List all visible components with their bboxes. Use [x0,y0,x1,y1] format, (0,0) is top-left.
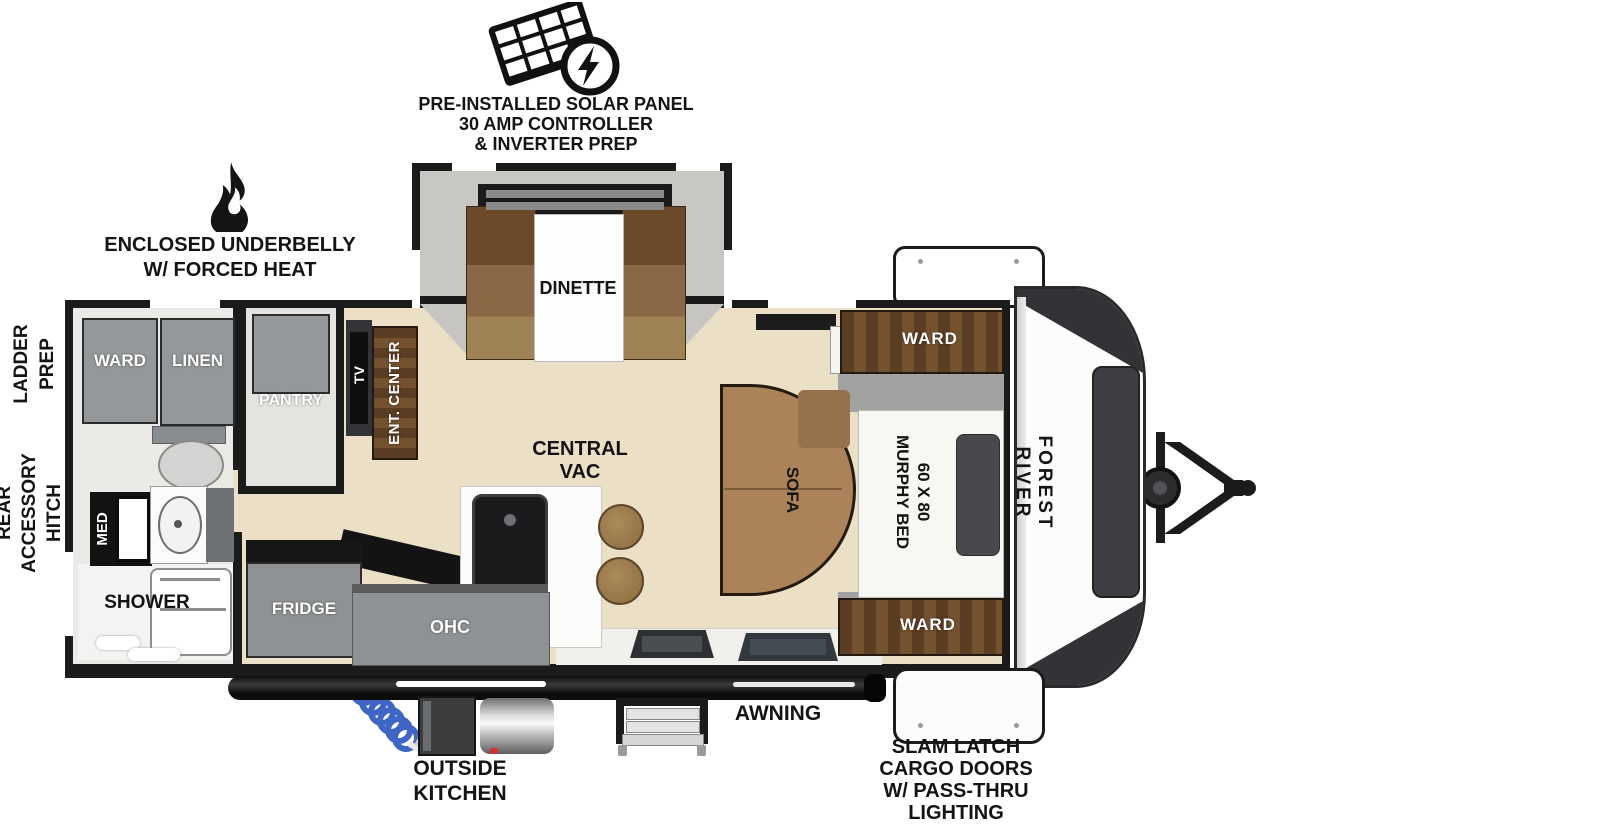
entry-step-well-inner [642,636,702,652]
vent-slat [486,190,664,198]
solar-panel-icon [487,2,627,96]
shower-label: SHOWER [84,592,210,614]
vanity-counter [206,488,234,562]
step-rail [616,698,708,706]
step-tread [622,734,704,746]
step-foot [618,745,627,756]
step-foot [697,745,706,756]
slide-window-top-left [452,163,496,171]
toilet-bowl [158,440,224,490]
ohc-label: OHC [390,618,510,638]
window-top-rear [150,300,220,308]
ward-front-top-label: WARD [880,330,980,349]
dinette-bench-left [466,206,536,360]
hitch-a-frame [1136,430,1258,545]
screw [918,259,923,264]
entry-door-glass-inner [750,639,826,655]
murphy-bed-label: 60 X 80 MURPHY BED [888,427,934,557]
awning-bar [228,676,884,700]
entry-steps [616,698,708,756]
solar-callout: PRE-INSTALLED SOLAR PANEL 30 AMP CONTROL… [400,94,712,154]
stool [598,504,644,550]
step-tread [626,721,700,733]
stool [596,557,644,605]
awning-highlight [396,681,546,687]
underbelly-callout: ENCLOSED UNDERBELLY W/ FORCED HEAT [74,233,386,283]
step-tread [626,708,700,720]
screw [1014,259,1019,264]
murphy-bed-pillow [956,434,1000,556]
fridge-top [246,540,362,564]
tv-label: TV [352,350,370,400]
awning-end-cap [864,674,886,702]
rear-accessory-hitch-callout: REAR ACCESSORY HITCH [0,435,70,591]
bathroom-wall [233,532,242,664]
flame-icon [206,162,254,232]
ladder-prep-callout: LADDER PREP [9,312,65,416]
fridge-label: FRIDGE [248,600,360,619]
pantry-cabinet [252,314,330,394]
ward-rear-label: WARD [84,352,156,371]
screw [1014,723,1019,728]
cap-band-top [1017,289,1143,373]
central-vac-label: CENTRAL VAC [518,438,642,484]
ent-center-label: ENT. CENTER [387,323,405,463]
outside-kitchen-cabinet [418,696,476,756]
floorplan-diagram: PRE-INSTALLED SOLAR PANEL 30 AMP CONTROL… [0,0,1600,835]
med-cabinet-door [116,496,150,562]
cargo-door-bottom [893,668,1045,744]
outside-kitchen-griddle [480,698,554,754]
med-label: MED [95,499,113,559]
linen-cabinet [160,318,235,426]
vanity-drain [174,520,182,528]
window-top-front [768,300,856,308]
pantry-label: PANTRY [242,392,340,410]
front-window [1092,366,1140,598]
nightstand-shelf [756,314,836,330]
sofa-label: SOFA [778,452,802,528]
awning-highlight [733,682,855,687]
slide-window-top-right [676,163,720,171]
brand-label: FOREST RIVER [1029,403,1055,563]
griddle-knob [490,748,498,754]
sink-faucet [504,514,516,526]
sofa-cushion [798,390,850,448]
dinette-label: DINETTE [528,278,628,299]
soap-ledge [128,648,180,661]
bed-band-top [838,372,1004,412]
vent-slat [486,202,664,210]
screw [918,723,923,728]
cargo-doors-label: SLAM LATCH CARGO DOORS W/ PASS-THRU LIGH… [858,736,1054,824]
slide-window-left [412,250,420,308]
window-rear-wall [65,552,73,636]
ward-rear-cabinet [82,318,158,424]
awning-label: AWNING [718,702,838,726]
shower-fixture [160,578,220,581]
ward-front-bottom-label: WARD [878,616,978,635]
dinette-bench-right [622,206,686,360]
linen-label: LINEN [162,352,233,371]
outside-kitchen-label: OUTSIDE KITCHEN [368,756,552,806]
slide-window-right [724,250,732,308]
cabinet-edge [423,701,431,751]
kitchen-sink [472,494,548,598]
